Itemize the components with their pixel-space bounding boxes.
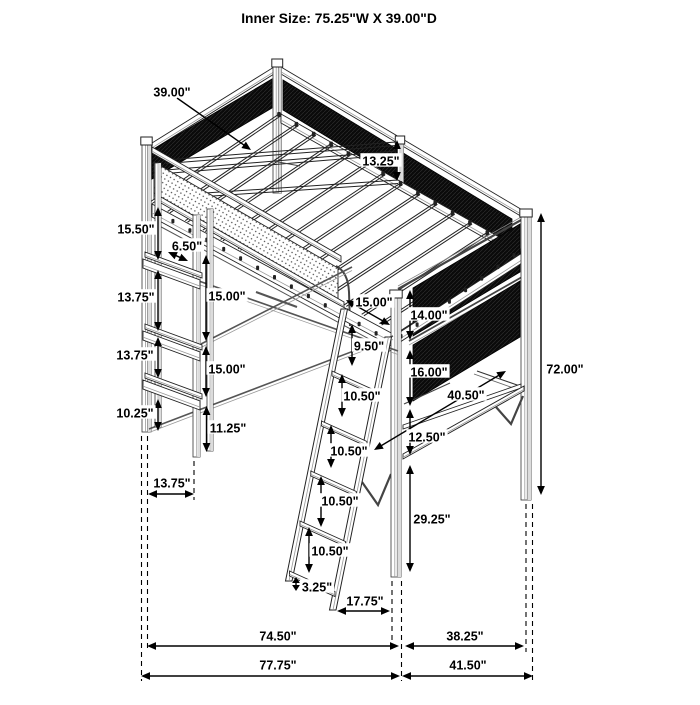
svg-text:15.50": 15.50" (117, 223, 154, 237)
svg-text:3.25": 3.25" (302, 581, 332, 595)
svg-text:13.75": 13.75" (116, 349, 153, 363)
svg-text:10.50": 10.50" (311, 545, 348, 559)
svg-text:72.00": 72.00" (546, 363, 583, 377)
svg-text:13.75": 13.75" (153, 477, 190, 491)
svg-text:15.00": 15.00" (208, 290, 245, 304)
svg-text:77.75": 77.75" (259, 659, 296, 673)
svg-text:10.25": 10.25" (116, 407, 153, 421)
svg-text:74.50": 74.50" (259, 630, 296, 644)
svg-text:13.75": 13.75" (117, 291, 154, 305)
svg-text:Inner Size: 75.25"W X 39.00"D: Inner Size: 75.25"W X 39.00"D (241, 11, 437, 26)
svg-text:16.00": 16.00" (410, 366, 447, 380)
svg-text:38.25": 38.25" (446, 630, 483, 644)
svg-text:15.00": 15.00" (208, 363, 245, 377)
svg-text:29.25": 29.25" (413, 513, 450, 527)
svg-text:15.00": 15.00" (355, 296, 392, 310)
svg-text:39.00": 39.00" (153, 86, 190, 100)
svg-text:6.50": 6.50" (172, 240, 202, 254)
svg-text:17.75": 17.75" (346, 595, 383, 609)
svg-text:11.25": 11.25" (210, 422, 247, 436)
svg-text:41.50": 41.50" (449, 659, 486, 673)
svg-text:9.50": 9.50" (354, 340, 384, 354)
svg-text:10.50": 10.50" (330, 445, 367, 459)
svg-text:13.25": 13.25" (362, 155, 399, 169)
svg-text:14.00": 14.00" (410, 309, 447, 323)
svg-text:10.50": 10.50" (321, 495, 358, 509)
svg-text:12.50": 12.50" (408, 431, 445, 445)
svg-text:10.50": 10.50" (343, 390, 380, 404)
svg-text:40.50": 40.50" (447, 389, 484, 403)
